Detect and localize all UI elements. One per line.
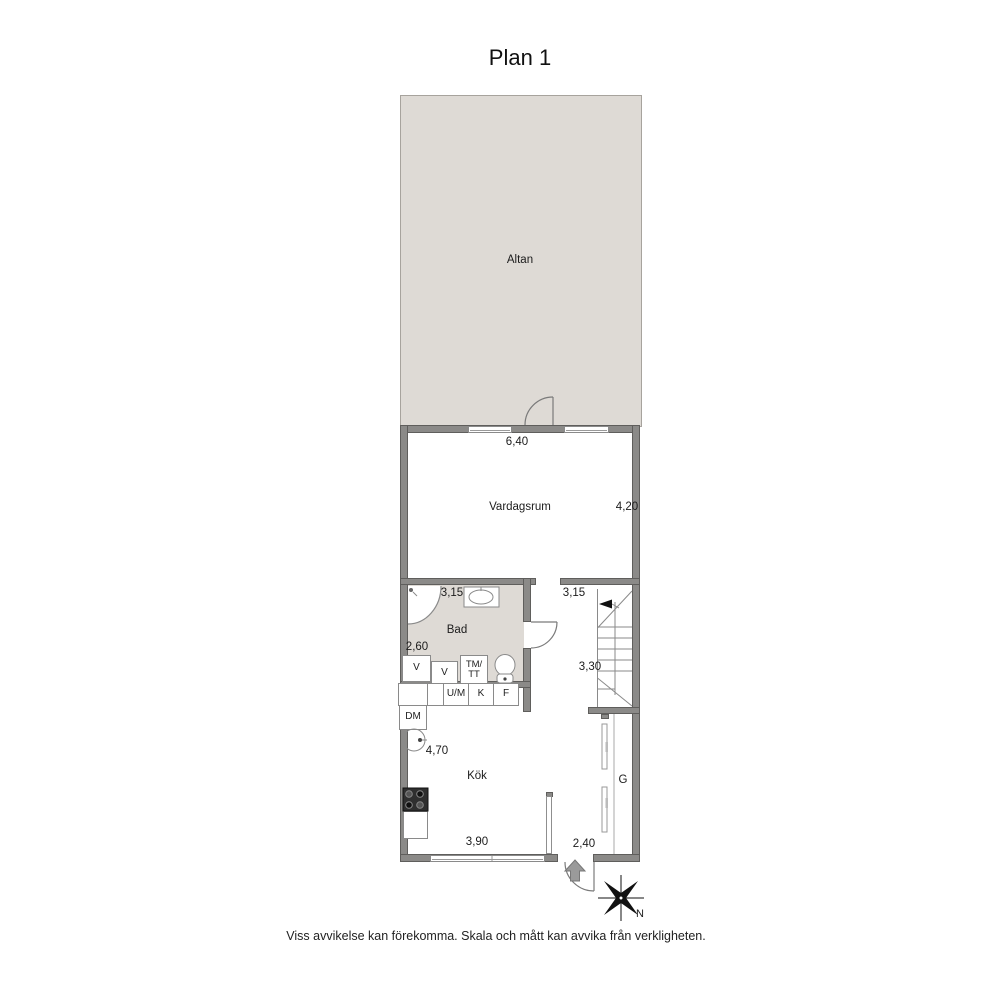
partition-stub (546, 796, 552, 854)
entrance-door (565, 862, 594, 891)
counter-cell (427, 683, 444, 706)
window (564, 426, 609, 433)
staircase (598, 589, 633, 707)
wall-segment (523, 578, 531, 622)
measurement-stairs-depth: 3,30 (579, 661, 601, 673)
room-label-altan: Altan (507, 254, 533, 266)
measurement-entre-width: 2,40 (573, 838, 595, 850)
bathroom-door (531, 622, 557, 648)
oven-micro-label: U/M (447, 689, 465, 700)
measurement-bad-width: 3,15 (441, 587, 463, 599)
fridge-label: K (478, 689, 485, 700)
measurement-stairs-width: 3,15 (563, 587, 585, 599)
cabinet-v-right-label: V (441, 668, 448, 679)
cabinet-v-left-label: V (413, 663, 420, 674)
compass-north-label: N (636, 908, 644, 920)
room-label-bad: Bad (447, 624, 467, 636)
wall-segment (593, 854, 640, 862)
dishwasher-label: DM (405, 712, 421, 723)
stair-direction-arrow (599, 600, 612, 609)
entry-arrow (565, 860, 585, 881)
wall-segment (400, 578, 536, 585)
window (430, 855, 545, 862)
measurement-vardagsrum-depth: 4,20 (616, 501, 638, 513)
wall-segment (588, 707, 640, 714)
counter-cell (398, 683, 428, 706)
wardrobe-doors (602, 714, 614, 854)
page-title: Plan 1 (400, 45, 640, 73)
wall-segment (560, 578, 640, 585)
oven-micro-box: U/M (443, 683, 469, 706)
cabinet-v-right: V (431, 661, 458, 685)
room-label-vardagsrum: Vardagsrum (489, 501, 551, 513)
fridge-box: K (468, 683, 494, 706)
dishwasher-box: DM (399, 705, 427, 730)
measurement-kok-width: 3,90 (466, 836, 488, 848)
cabinet-v-left: V (402, 655, 431, 682)
wall-segment (632, 425, 640, 862)
wardrobe-label: G (619, 774, 628, 786)
floor-plan-page: Plan 1 V V TM/TT U/M K F DM (0, 0, 992, 992)
counter-cell (403, 811, 428, 839)
dryer-label: TT (468, 669, 480, 680)
measurement-vardagsrum-width: 6,40 (506, 436, 528, 448)
washer-dryer-box: TM/TT (460, 655, 488, 685)
measurement-kok-depth: 4,70 (426, 745, 448, 757)
freezer-label: F (503, 689, 509, 700)
room-label-kok: Kök (467, 770, 487, 782)
wall-segment (601, 714, 609, 719)
window (468, 426, 512, 433)
freezer-box: F (493, 683, 519, 706)
wall-segment (523, 648, 531, 712)
disclaimer-text: Viss avvikelse kan förekomma. Skala och … (0, 929, 992, 943)
measurement-bad-depth: 2,60 (406, 641, 428, 653)
